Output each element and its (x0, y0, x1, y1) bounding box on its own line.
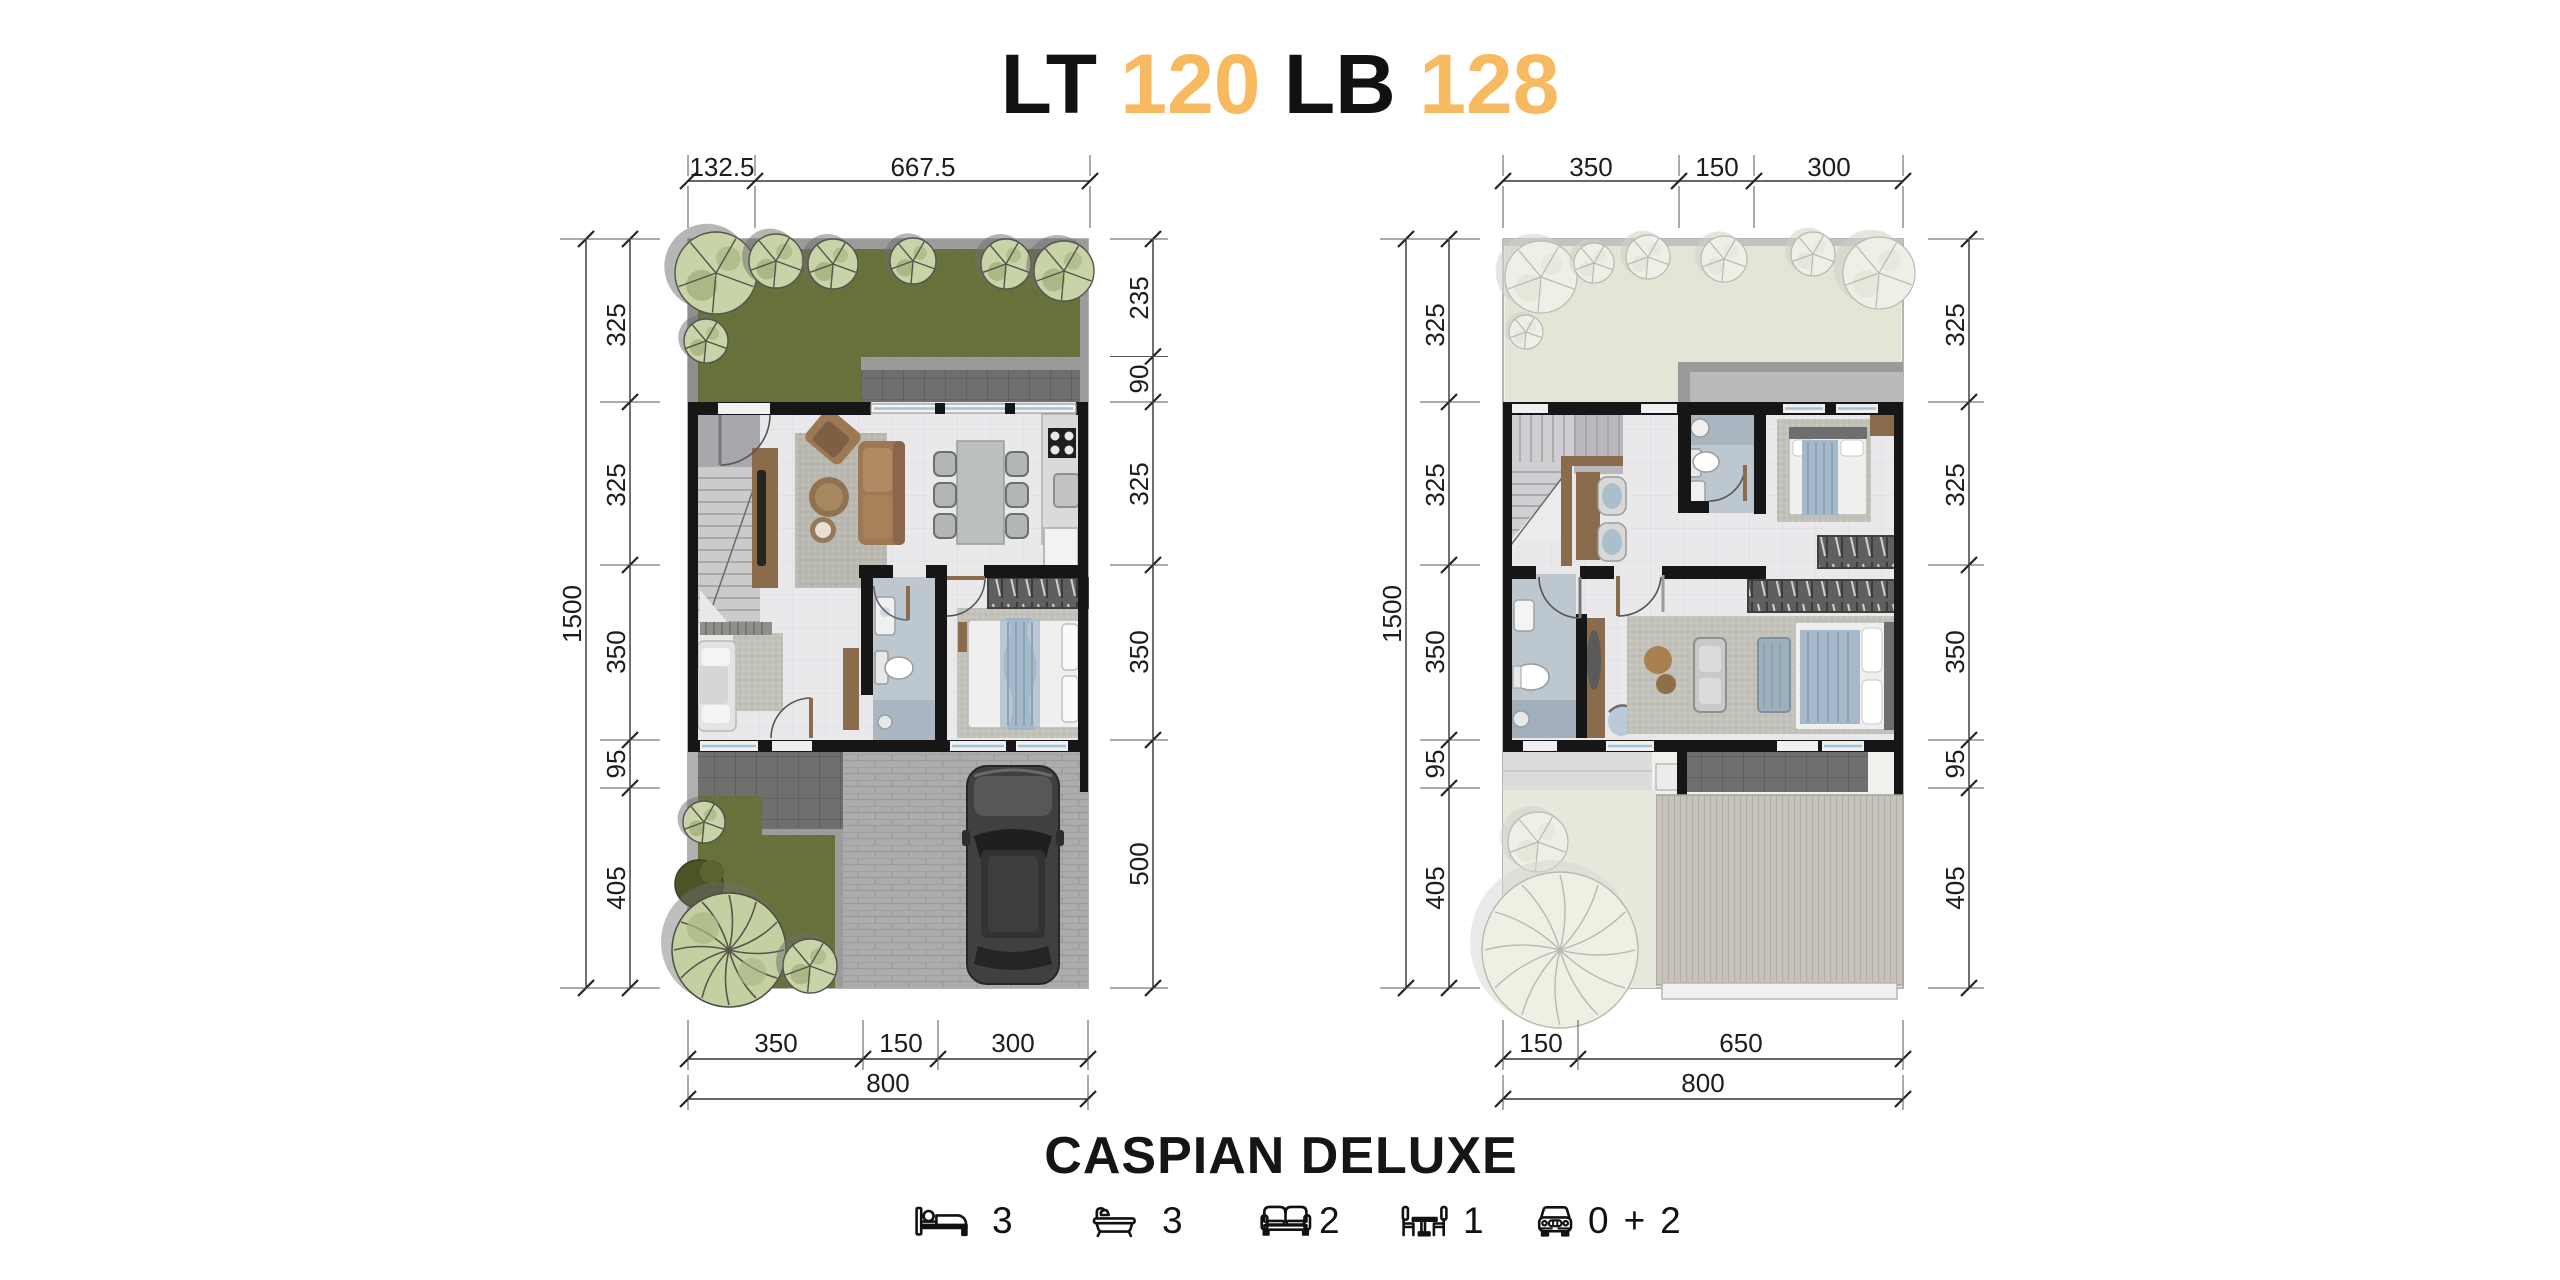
svg-text:150: 150 (1695, 152, 1738, 182)
svg-text:325: 325 (1940, 463, 1970, 506)
svg-text:235: 235 (1124, 276, 1154, 319)
svg-text:405: 405 (1940, 866, 1970, 909)
svg-text:CASPIAN DELUXE: CASPIAN DELUXE (1044, 1127, 1517, 1185)
svg-text:3: 3 (992, 1200, 1013, 1241)
svg-text:1500: 1500 (557, 585, 587, 643)
svg-text:0+2: 0+2 (1588, 1200, 1696, 1241)
svg-text:350: 350 (1940, 630, 1970, 673)
svg-text:2: 2 (1319, 1200, 1340, 1241)
svg-text:90: 90 (1124, 365, 1154, 394)
svg-text:3: 3 (1162, 1200, 1183, 1241)
svg-text:150: 150 (879, 1028, 922, 1058)
svg-text:325: 325 (1940, 303, 1970, 346)
svg-text:500: 500 (1124, 842, 1154, 885)
svg-text:325: 325 (1420, 463, 1450, 506)
svg-text:95: 95 (601, 750, 631, 779)
svg-text:1: 1 (1463, 1200, 1484, 1241)
svg-text:405: 405 (1420, 866, 1450, 909)
svg-text:95: 95 (1420, 750, 1450, 779)
svg-text:325: 325 (601, 303, 631, 346)
svg-text:667.5: 667.5 (890, 152, 955, 182)
svg-text:405: 405 (601, 866, 631, 909)
svg-text:650: 650 (1719, 1028, 1762, 1058)
svg-text:350: 350 (1420, 630, 1450, 673)
svg-text:95: 95 (1940, 750, 1970, 779)
svg-text:150: 150 (1519, 1028, 1562, 1058)
svg-text:350: 350 (1569, 152, 1612, 182)
svg-text:132.5: 132.5 (689, 152, 754, 182)
svg-text:350: 350 (1124, 630, 1154, 673)
svg-text:300: 300 (1807, 152, 1850, 182)
svg-text:LT 120 LB 128: LT 120 LB 128 (1001, 37, 1560, 131)
svg-text:800: 800 (1681, 1068, 1724, 1098)
svg-text:325: 325 (1420, 303, 1450, 346)
svg-text:325: 325 (601, 463, 631, 506)
svg-text:350: 350 (754, 1028, 797, 1058)
svg-text:325: 325 (1124, 462, 1154, 505)
svg-text:300: 300 (991, 1028, 1034, 1058)
svg-text:350: 350 (601, 630, 631, 673)
svg-text:1500: 1500 (1377, 585, 1407, 643)
svg-text:800: 800 (866, 1068, 909, 1098)
